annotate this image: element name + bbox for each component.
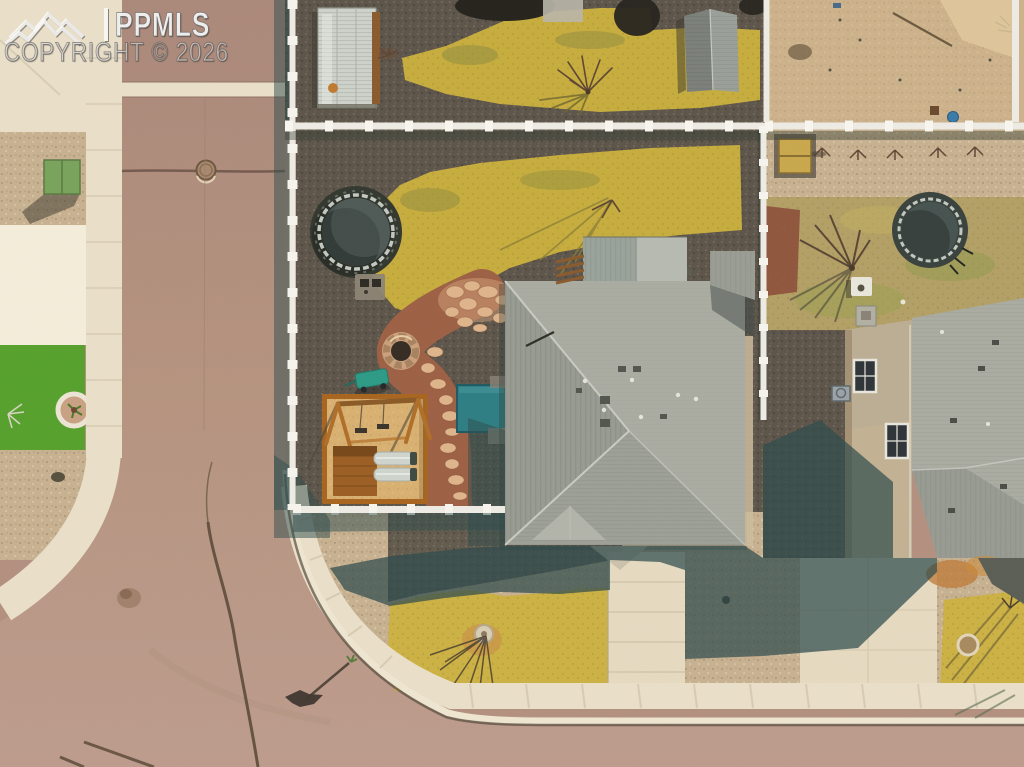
aerial-photo-stage: PPMLS COPYRIGHT © 2026 (0, 0, 1024, 767)
aerial-photo (0, 0, 1024, 767)
photo-grain (0, 0, 1024, 767)
